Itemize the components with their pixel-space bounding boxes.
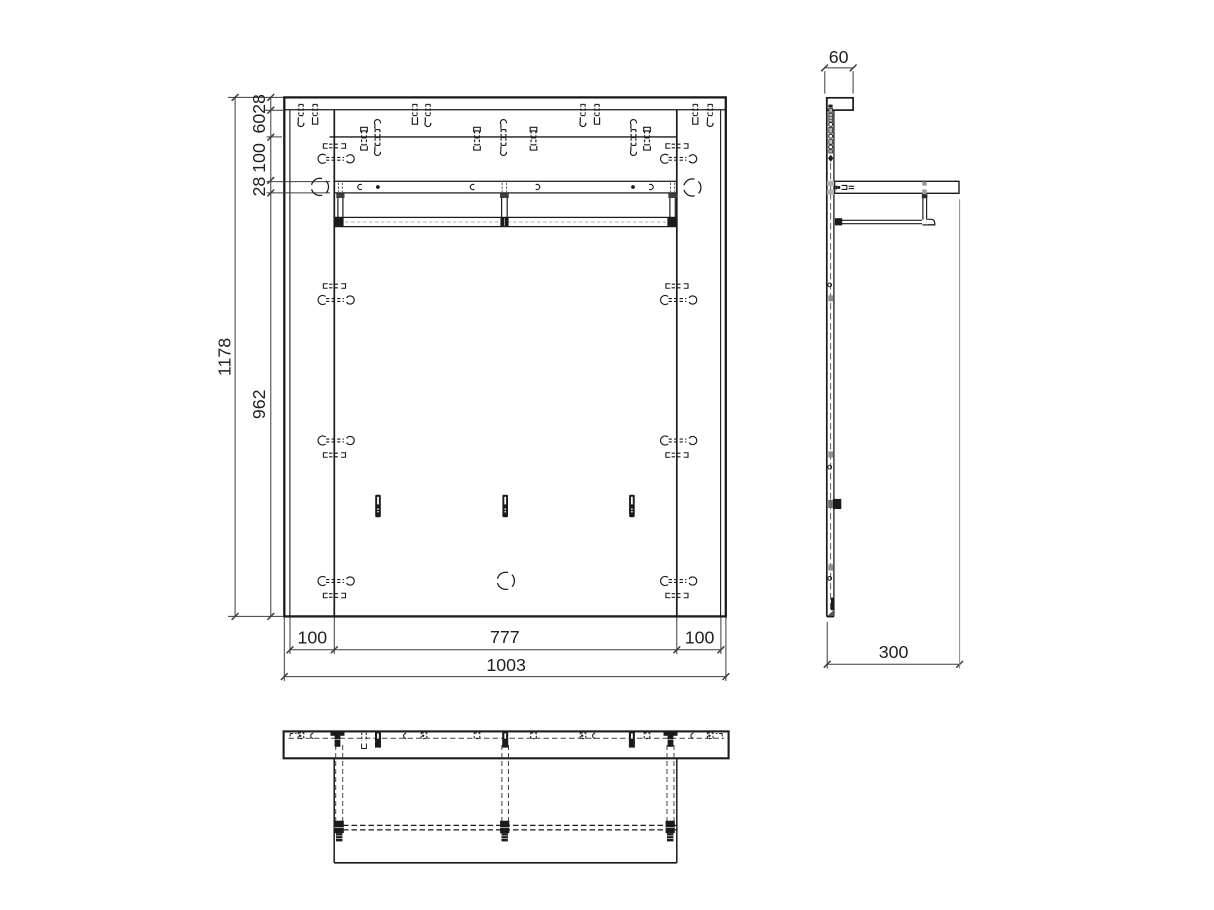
- svg-text:962: 962: [249, 389, 269, 419]
- svg-text:60: 60: [249, 114, 269, 134]
- svg-text:1003: 1003: [486, 655, 526, 675]
- svg-text:777: 777: [490, 627, 520, 647]
- svg-text:100: 100: [249, 143, 269, 173]
- svg-text:60: 60: [829, 47, 849, 67]
- svg-text:300: 300: [879, 642, 909, 662]
- svg-text:1178: 1178: [214, 338, 234, 376]
- svg-text:100: 100: [685, 628, 715, 648]
- svg-text:28: 28: [249, 94, 269, 114]
- svg-text:100: 100: [297, 628, 327, 648]
- svg-text:28: 28: [249, 177, 269, 197]
